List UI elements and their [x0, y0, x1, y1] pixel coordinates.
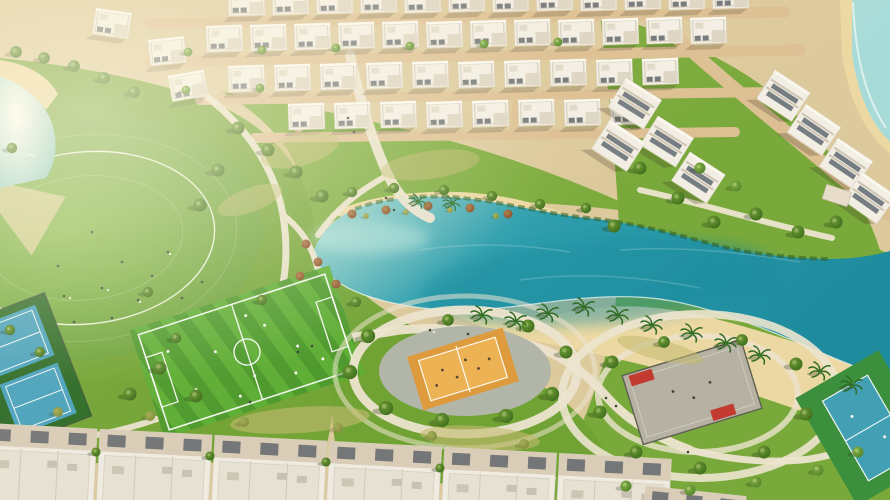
masterplan-scene: Aerial golden-hour rendering of a white-… — [0, 0, 890, 500]
aerial-render-image: Aerial golden-hour rendering of a white-… — [0, 0, 890, 500]
warm-light-overlay — [0, 0, 890, 500]
